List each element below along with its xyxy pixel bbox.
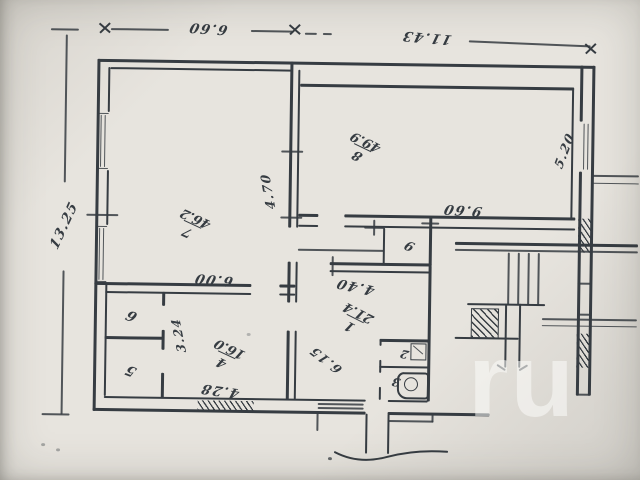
dim-room7-bottom: 6.00 [192,270,235,289]
stair-pier-hatch [471,308,499,338]
dim-top-right: 11.43 [400,28,454,48]
ext-structure-line [593,175,639,177]
dim-left: 13.25 [47,198,81,252]
dim-end-mark [288,23,302,37]
room-4-label: 4 16.0 [204,335,249,375]
dim-line [111,28,169,30]
dim-room4-left: 3.24 [168,318,189,353]
ext-structure-line [593,183,639,185]
dim-right: 5.20 [551,129,577,171]
dim-top-left: 6.60 [187,19,230,37]
wall-room56-divider [105,336,164,339]
wall-room7-bottom [279,284,295,287]
dim-end-mark [51,28,79,30]
scan-speck [41,443,45,446]
wall-bath-left [379,387,381,400]
room-1-label: 1 21.4 [332,298,377,338]
dim-end-mark [584,42,598,56]
scan-speck [247,333,251,336]
stair-step [537,253,539,305]
scan-speck [56,448,60,451]
toilet-bowl [404,377,418,391]
dim-end-mark [98,21,112,35]
room-9-number: 9 [402,237,418,253]
wall-central-inner [296,70,300,228]
room-8-label: 8 49.9 [340,127,385,167]
wall-bath-top [380,339,430,342]
room-2-number: 2 [398,347,410,362]
room-7-label: 7 46.2 [170,204,215,244]
wall-joint [577,283,591,285]
window-glass [587,124,589,170]
wall-central [288,62,293,228]
wall-room4-left [161,373,164,398]
entrance-wall [455,242,638,247]
dim-dash [305,33,317,35]
floor-plan-drawing: 6.60 11.43 13.25 4.70 [0,0,640,480]
room-6-number: 6 [123,307,140,325]
stair-rail [504,304,507,368]
stair-step [517,253,519,305]
wall-room9-left [383,228,386,265]
dim-center-vertical: 4.70 [257,173,279,209]
wall-bath-divider [379,366,429,369]
wall-inner-left [106,170,109,225]
dim-line [251,30,293,32]
wall-room7-top-inner [110,67,292,72]
corridor-line [298,249,384,252]
wall-room8-bottom [298,214,318,217]
dim-end-mark [42,413,70,415]
window-glass [583,124,585,170]
window-glass [104,115,106,167]
wall-central-inner [294,331,297,400]
dim-tick [280,216,302,218]
dim-room1-inner: 6.15 [305,344,345,377]
wall-room8-top-inner [300,84,574,90]
dim-room1-top: 4.40 [333,275,377,298]
dim-line [469,40,591,47]
dim-tick [421,222,439,224]
dim-line [61,270,65,414]
wall-room4-left [162,292,165,306]
dim-tick [316,413,318,431]
wall-room1-top [330,262,432,266]
entrance-wall-inner [455,249,638,253]
wall-central [286,331,289,400]
wall-room4-left [161,330,164,350]
room-5-number: 5 [123,362,140,380]
wall-joint [577,314,591,316]
wall-room8-bottom-inner [298,225,318,227]
ground-line [333,444,453,470]
window-hatch [198,400,254,411]
step-line [318,403,364,405]
scanned-floor-plan: 6.60 11.43 13.25 4.70 [0,0,640,480]
dim-tick [373,220,375,236]
wall-outer-bottom [388,412,490,416]
porch-edge [387,420,433,423]
wall-central [287,262,290,303]
wall-tick [86,214,118,216]
step-line [318,407,364,409]
wall-inner-left [104,284,108,396]
wall-joint [576,394,590,396]
window-glass [98,228,100,280]
wall-bottom-inner [388,400,428,403]
dim-dash [323,33,332,35]
wall-central-inner [295,262,298,303]
stair-landing-edge [455,337,519,340]
door-jamb [331,256,333,276]
porch-edge [431,415,433,423]
wall-room7-bottom-inner [105,291,251,295]
stair-step [507,253,509,305]
window-glass [102,228,104,280]
scan-speck [328,457,332,460]
wall-outer-right [580,66,583,122]
window-glass [100,115,102,167]
wall-hatch [576,334,590,368]
dim-tick [281,150,303,152]
wall-room7-bottom-inner [279,293,295,295]
wall-hatch [578,219,592,253]
dim-room8-bottom: 9.60 [441,201,484,219]
stair-step [527,253,529,305]
dim-line [64,34,68,182]
wall-room1-top-inner [330,270,430,273]
wall-inner-left [108,67,111,112]
stair-rail [518,304,521,368]
